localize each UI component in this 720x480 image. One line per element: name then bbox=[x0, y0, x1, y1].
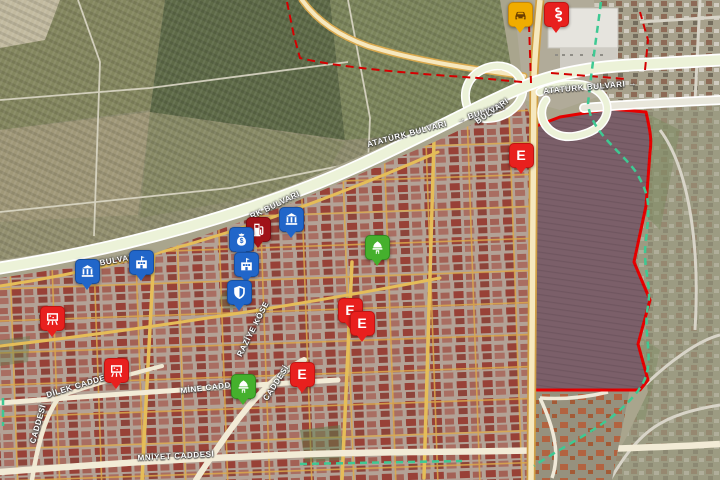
bank-2-pin[interactable] bbox=[75, 259, 100, 284]
bank-columns-icon bbox=[79, 263, 96, 280]
pharmacy-1-pin[interactable]: E bbox=[509, 143, 534, 168]
health-point-pin[interactable] bbox=[544, 2, 569, 27]
letter-e-icon: E bbox=[516, 148, 525, 162]
school-1-pin[interactable] bbox=[40, 306, 65, 331]
satellite-basemap bbox=[0, 0, 720, 480]
bank-1-pin[interactable] bbox=[279, 207, 304, 232]
mosque-1-pin[interactable] bbox=[365, 235, 390, 260]
pharmacy-3-pin[interactable]: E bbox=[350, 311, 375, 336]
school-2-pin[interactable] bbox=[104, 358, 129, 383]
building-flag-icon bbox=[238, 256, 255, 273]
snake-icon bbox=[548, 6, 565, 23]
money-exchange-pin[interactable]: $ bbox=[229, 227, 254, 252]
svg-text:$: $ bbox=[239, 238, 243, 245]
shield-icon bbox=[231, 284, 248, 301]
mosque-dome-icon bbox=[235, 378, 252, 395]
mosque-dome-icon bbox=[369, 239, 386, 256]
car-icon bbox=[512, 6, 529, 23]
building-flag-icon bbox=[133, 254, 150, 271]
taxi-stand-pin[interactable] bbox=[508, 2, 533, 27]
public-building-2-pin[interactable] bbox=[129, 250, 154, 275]
letter-e-icon: E bbox=[297, 367, 306, 381]
map-canvas[interactable]: ATATÜRK BULVARI→ BULVARIATATÜRK BULVARI … bbox=[0, 0, 720, 480]
mosque-2-pin[interactable] bbox=[231, 374, 256, 399]
pharmacy-4-pin[interactable]: E bbox=[290, 362, 315, 387]
public-building-1-pin[interactable] bbox=[234, 252, 259, 277]
letter-e-icon: E bbox=[357, 316, 366, 330]
school-board-icon bbox=[44, 310, 61, 327]
police-shield-pin[interactable] bbox=[227, 280, 252, 305]
school-board-icon bbox=[108, 362, 125, 379]
bank-columns-icon bbox=[283, 211, 300, 228]
money-bag-icon: $ bbox=[233, 231, 250, 248]
